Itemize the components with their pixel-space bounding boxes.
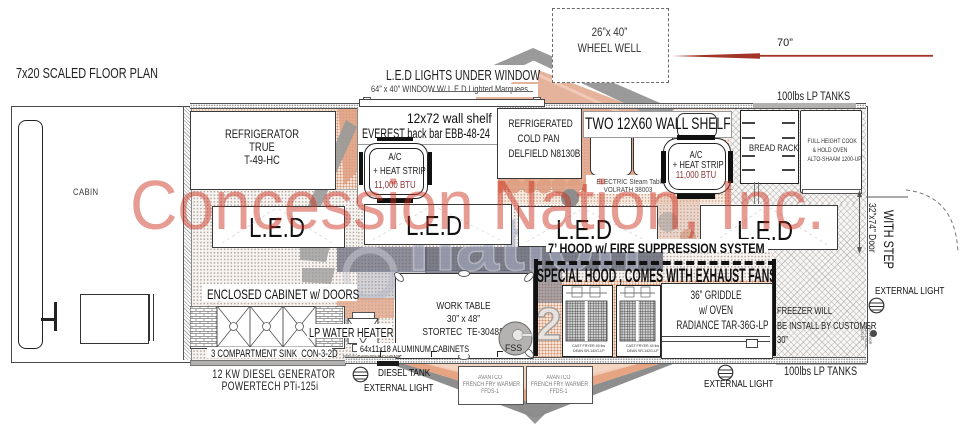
svg-text:CAST FRYER 45 lbs: CAST FRYER 45 lbs bbox=[626, 344, 659, 348]
svg-text:FSS: FSS bbox=[505, 343, 522, 353]
svg-text:CAST FRYER 45 lbs: CAST FRYER 45 lbs bbox=[572, 344, 605, 348]
svg-text:DEAN SR-142G-LP: DEAN SR-142G-LP bbox=[627, 349, 659, 353]
svg-text:DEAN SR-142G-LP: DEAN SR-142G-LP bbox=[573, 349, 605, 353]
